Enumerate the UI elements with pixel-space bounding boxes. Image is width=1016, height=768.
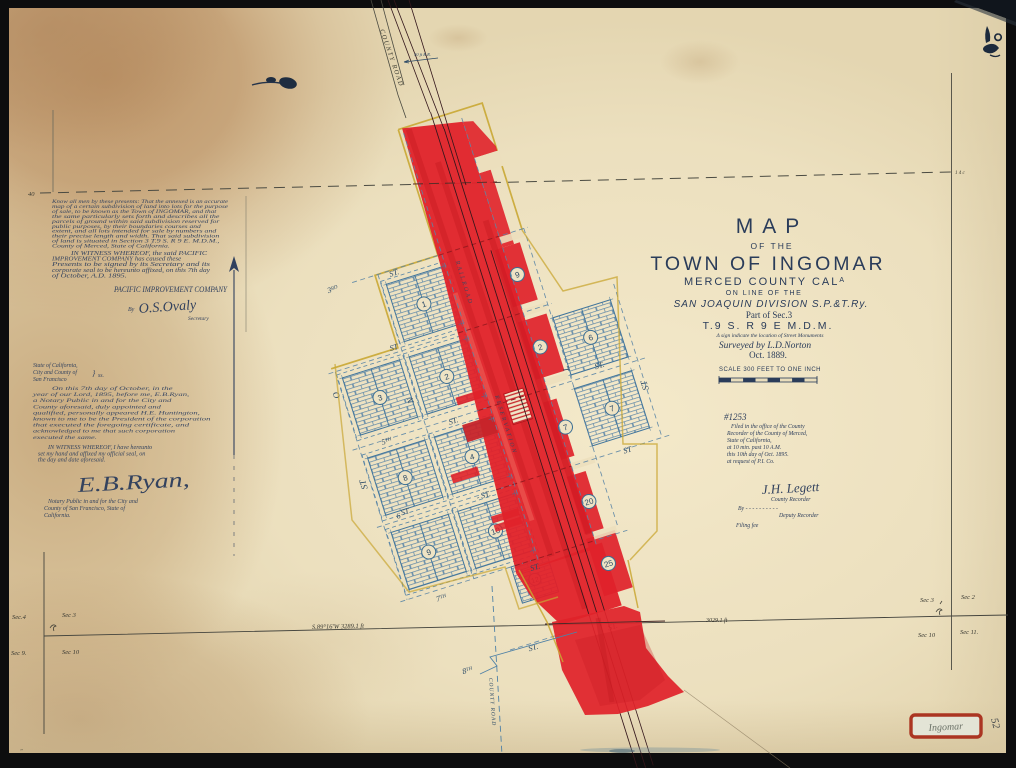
svg-text:On this 7th day of October, in: On this 7th day of October, in the <box>52 385 174 392</box>
svg-text:County of San Francisco, Stat: County of San Francisco, State of <box>44 505 126 512</box>
svg-text:By: By <box>128 307 135 313</box>
svg-text:Part of Sec.3: Part of Sec.3 <box>746 310 793 320</box>
svg-text:Sec 2: Sec 2 <box>961 594 976 601</box>
svg-text:#1253: #1253 <box>724 412 747 422</box>
svg-text:Sec.4: Sec.4 <box>12 614 27 621</box>
svg-text:qualified, personally appeared: qualified, personally appeared H.E. Hunt… <box>33 409 201 416</box>
svg-text:California.: California. <box>44 512 71 519</box>
svg-text:of October, A.D. 1895.: of October, A.D. 1895. <box>52 272 127 279</box>
svg-text:ss.: ss. <box>98 373 104 379</box>
svg-text:MERCED COUNTY CALA: MERCED COUNTY CALA <box>684 276 846 288</box>
svg-text:executed the same.: executed the same. <box>33 435 97 441</box>
svg-text:By - - - - - - - - - -: By - - - - - - - - - - <box>738 506 778 512</box>
svg-text:Sec 9.: Sec 9. <box>11 650 27 657</box>
svg-text:Sec 10: Sec 10 <box>62 649 80 656</box>
svg-text:State of California,: State of California, <box>33 362 78 369</box>
svg-text:PACIFIC IMPROVEMENT COMPANY: PACIFIC IMPROVEMENT COMPANY <box>113 285 228 294</box>
svg-text:County Recorder: County Recorder <box>771 497 811 503</box>
svg-text:the day and date aforesaid.: the day and date aforesaid. <box>38 457 105 464</box>
svg-text:San Francisco: San Francisco <box>33 377 67 383</box>
svg-text:at request of P.I. Co.: at request of P.I. Co. <box>727 458 775 465</box>
svg-text:1 4 c: 1 4 c <box>955 171 966 176</box>
svg-text:Sec 3: Sec 3 <box>920 597 935 604</box>
svg-text:S.89°16′W 3289.1 ft: S.89°16′W 3289.1 ft <box>312 623 364 631</box>
svg-text:Sec 10: Sec 10 <box>918 632 936 639</box>
svg-text:Sec 3: Sec 3 <box>62 612 77 619</box>
svg-text:known to me to be the Presiden: known to me to be the President of the c… <box>33 416 211 423</box>
svg-text:SAN JOAQUIN DIVISION S.P.&T.Ry: SAN JOAQUIN DIVISION S.P.&T.Ry. <box>674 299 869 310</box>
svg-text:acknowledged to me that such c: acknowledged to me that such corporation <box>33 429 175 435</box>
svg-text:a Notary Public in and for the: a Notary Public in and for the City and <box>33 397 172 404</box>
svg-text:J.H. Legett: J.H. Legett <box>761 479 819 497</box>
svg-text:OF THE: OF THE <box>750 241 793 251</box>
svg-text:Notary Public in and for the C: Notary Public in and for the City and <box>47 498 139 505</box>
svg-text:County aforesaid, duly appoint: County aforesaid, duly appointed and <box>33 403 161 410</box>
svg-text:Filed in the office of the Cou: Filed in the office of the County <box>730 423 805 430</box>
svg-text:Deputy Recorder: Deputy Recorder <box>778 513 819 519</box>
svg-text:40: 40 <box>28 191 35 198</box>
svg-text:Secretary: Secretary <box>188 316 209 322</box>
svg-text:this 10th day of Oct. 1895.: this 10th day of Oct. 1895. <box>727 451 789 458</box>
svg-text:T.9 S. R 9 E M.D.M.: T.9 S. R 9 E M.D.M. <box>703 320 834 332</box>
svg-text:Oct. 1889.: Oct. 1889. <box>749 350 787 360</box>
svg-text:MAP: MAP <box>736 215 809 238</box>
svg-text:year of our Lord, 1895, before: year of our Lord, 1895, before me, E.B.R… <box>31 391 190 398</box>
svg-text:County of Merced, State of Cal: County of Merced, State of California. <box>52 243 170 250</box>
svg-text:ON LINE OF THE: ON LINE OF THE <box>726 290 803 297</box>
svg-text:at 10 min. past 10 A.M.: at 10 min. past 10 A.M. <box>727 445 781 451</box>
svg-text:City and County of: City and County of <box>33 369 78 376</box>
svg-text:that executed the foregoing ce: that executed the foregoing certificate,… <box>33 422 190 429</box>
svg-text:Ingomar: Ingomar <box>927 721 963 734</box>
svg-text:Sec 11.: Sec 11. <box>960 629 979 636</box>
svg-text:50 ft R.R.: 50 ft R.R. <box>414 52 431 57</box>
svg-text:Δ sign indicate the location o: Δ sign indicate the location of Street M… <box>716 332 824 339</box>
svg-text:Filing fee: Filing fee <box>735 522 759 529</box>
svg-text:TOWN OF INGOMAR: TOWN OF INGOMAR <box>650 253 885 275</box>
svg-text:3029.1 ft: 3029.1 ft <box>705 617 728 624</box>
svg-text:Recorder of the County of Merc: Recorder of the County of Merced, <box>726 430 808 437</box>
svg-text:State of California,: State of California, <box>727 437 772 444</box>
svg-text:SCALE 300 FEET TO ONE INCH: SCALE 300 FEET TO ONE INCH <box>719 367 821 373</box>
